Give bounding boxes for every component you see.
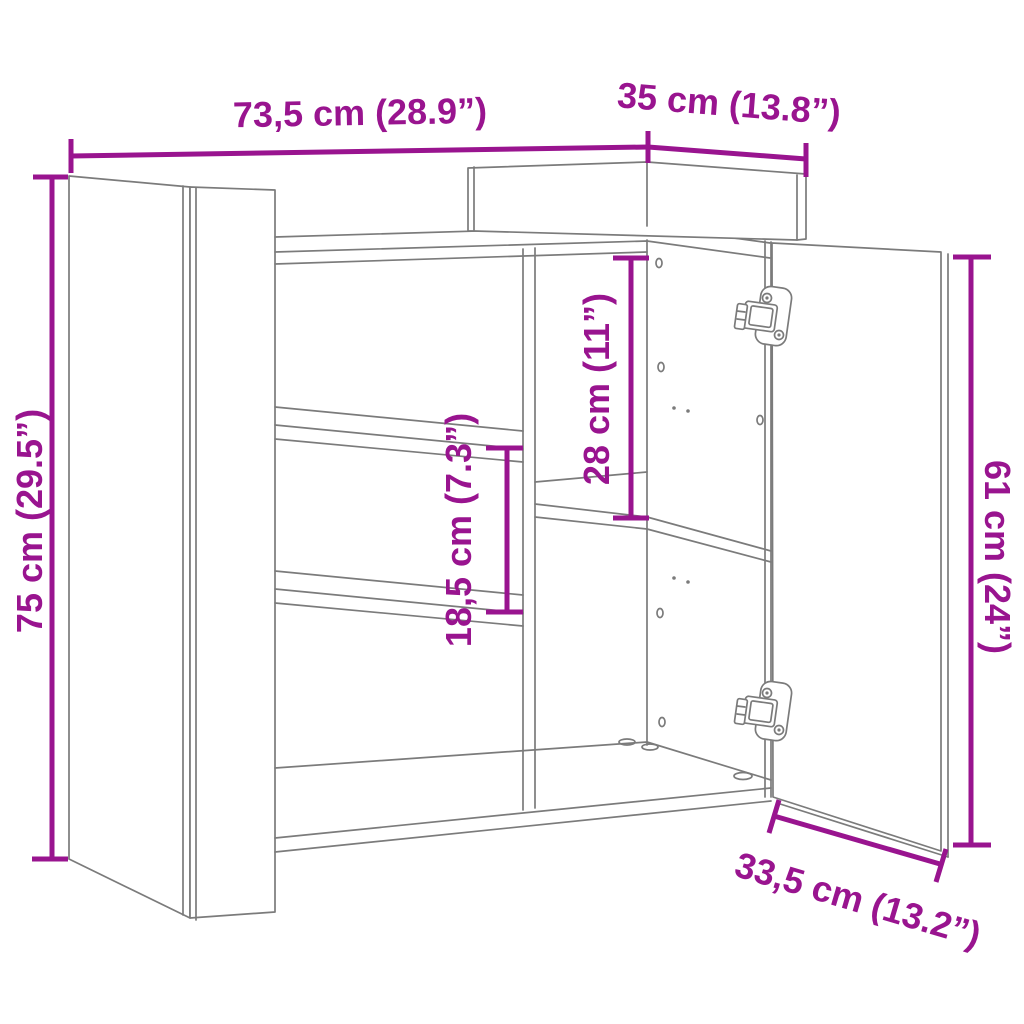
dimension-compartment [613,258,649,518]
back-upstand [468,162,806,240]
left-side-panel [69,176,190,918]
cabinet-line-art [0,0,1024,1024]
door-panel [772,243,941,851]
dim-depth-line [648,147,806,159]
dim-width-line [71,147,648,156]
left-shelf-upper [275,407,523,462]
shelf-pin-holes [656,259,690,727]
hinge-bottom-icon [734,680,793,742]
dim-width-label: 73,5 cm (28.9”) [233,90,488,136]
right-shelf [535,472,771,562]
dimension-shelf-spacing [486,448,523,612]
left-inner-face [190,187,275,918]
door-hinge-spare-hole [757,416,763,425]
dim-door-height-label: 61 cm (24”) [976,460,1018,654]
ceiling-back-edge [275,252,647,264]
dim-shelf-spacing-label: 18,5 cm (7.3”) [438,413,480,647]
hinge-top-icon [734,285,793,347]
dim-compartment-label: 28 cm (11”) [576,293,618,485]
dimension-diagram: 73,5 cm (28.9”) 35 cm (13.8”) 75 cm (29.… [0,0,1024,1024]
dim-height-label: 75 cm (29.5”) [9,409,51,633]
bottom-fitting-holes [619,739,752,780]
left-shelf-lower [275,571,523,626]
